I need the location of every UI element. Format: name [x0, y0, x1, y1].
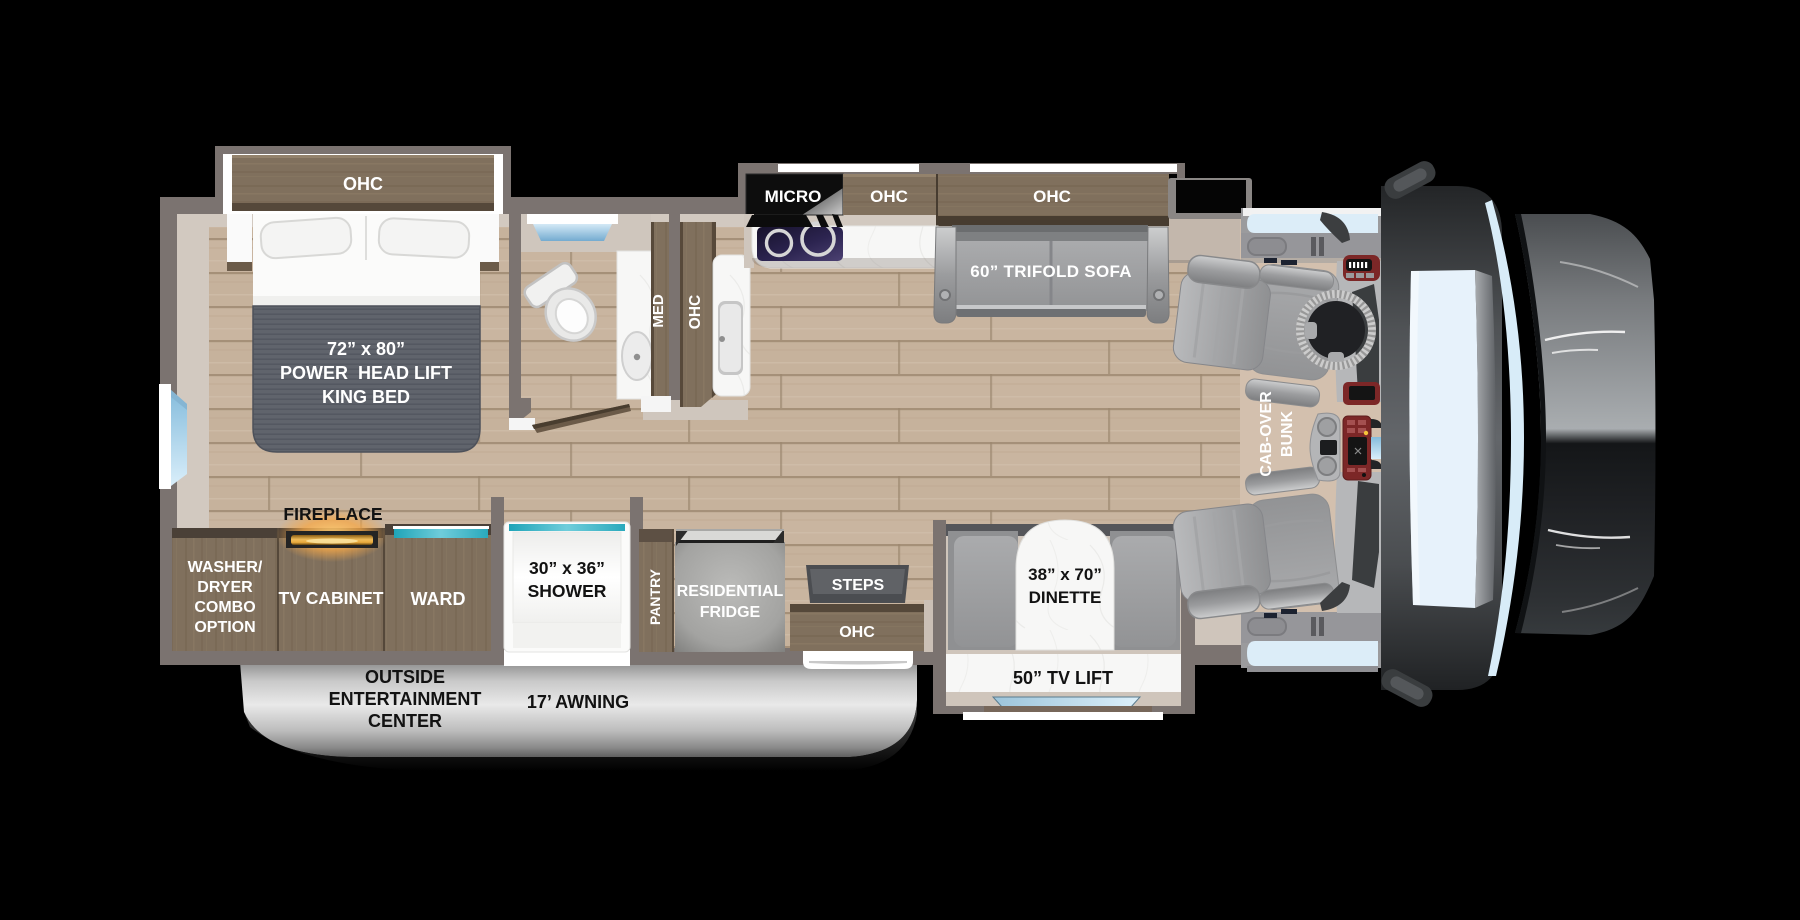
svg-text:DINETTE: DINETTE — [1029, 588, 1102, 607]
svg-text:WASHER/: WASHER/ — [188, 559, 263, 576]
svg-text:OHC: OHC — [870, 187, 908, 206]
svg-text:KING BED: KING BED — [322, 387, 410, 407]
svg-text:MED: MED — [650, 294, 667, 328]
svg-text:WARD: WARD — [411, 589, 466, 609]
svg-text:FIREPLACE: FIREPLACE — [283, 504, 382, 524]
svg-text:COMBO: COMBO — [194, 599, 255, 616]
svg-text:30” x 36”: 30” x 36” — [529, 558, 605, 578]
svg-text:50” TV LIFT: 50” TV LIFT — [1013, 668, 1113, 688]
svg-text:OPTION: OPTION — [194, 619, 255, 636]
svg-text:72” x 80”: 72” x 80” — [327, 339, 405, 359]
svg-text:FRIDGE: FRIDGE — [700, 604, 761, 621]
svg-text:60” TRIFOLD SOFA: 60” TRIFOLD SOFA — [970, 262, 1132, 281]
svg-text:OHC: OHC — [687, 295, 704, 329]
svg-text:OHC: OHC — [1033, 187, 1071, 206]
svg-text:SHOWER: SHOWER — [528, 581, 607, 601]
svg-text:MICRO: MICRO — [765, 187, 822, 206]
svg-text:TV CABINET: TV CABINET — [279, 588, 384, 608]
svg-text:STEPS: STEPS — [832, 577, 885, 594]
svg-text:PANTRY: PANTRY — [647, 568, 663, 625]
svg-text:CENTER: CENTER — [368, 711, 442, 731]
svg-text:BUNK: BUNK — [1279, 410, 1296, 457]
svg-text:DRYER: DRYER — [197, 579, 253, 596]
svg-text:OUTSIDE: OUTSIDE — [365, 667, 445, 687]
svg-text:38” x 70”: 38” x 70” — [1028, 565, 1102, 584]
svg-text:POWER HEAD LIFT: POWER HEAD LIFT — [280, 363, 452, 383]
svg-text:17’ AWNING: 17’ AWNING — [527, 692, 629, 712]
svg-text:RESIDENTIAL: RESIDENTIAL — [677, 583, 784, 600]
svg-text:OHC: OHC — [343, 174, 383, 194]
svg-text:ENTERTAINMENT: ENTERTAINMENT — [329, 689, 482, 709]
svg-text:CAB-OVER: CAB-OVER — [1258, 391, 1275, 477]
svg-text:OHC: OHC — [839, 624, 875, 641]
